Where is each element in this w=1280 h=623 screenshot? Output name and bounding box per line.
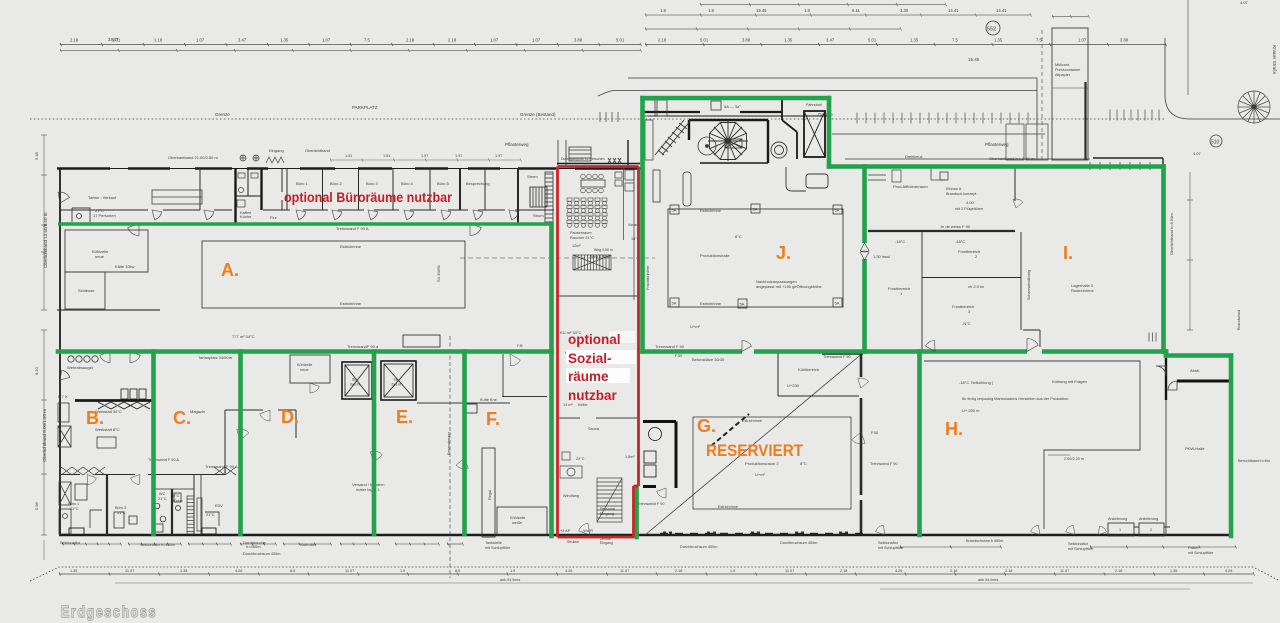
svg-text:Büro 1: Büro 1 [296,181,309,186]
svg-text:34.07: 34.07 [108,37,119,42]
svg-text:Weg 0,50 m: Weg 0,50 m [590,255,610,259]
svg-text:Besanderung: Besanderung [447,432,451,455]
svg-text:Kälte 10kw: Kälte 10kw [115,264,135,269]
svg-text:Fahrstuhl: Fahrstuhl [806,103,822,107]
svg-text:4.26: 4.26 [565,569,572,573]
svg-text:Oberkantband 21.00/0.50 m: Oberkantband 21.00/0.50 m [168,155,218,160]
svg-text:4.26: 4.26 [895,569,902,573]
svg-text:21°C: 21°C [206,513,215,517]
svg-text:Estrichrinne: Estrichrinne [700,208,722,213]
svg-text:Produktionsraum 2: Produktionsraum 2 [745,461,779,466]
svg-text:Prod.Affiniererraum: Prod.Affiniererraum [893,184,928,189]
svg-text:angepasst mit +150 geÖffnungsh: angepasst mit +150 geÖffnungshöhe [756,284,822,289]
svg-text:1.07: 1.07 [1078,38,1087,43]
svg-text:RESERVIERT: RESERVIERT [706,441,804,460]
svg-text:15.45: 15.45 [756,8,767,13]
svg-text:2.18: 2.18 [840,569,847,573]
svg-text:2.18: 2.18 [406,38,415,43]
svg-text:nutzbar: nutzbar [568,388,617,403]
svg-text:Anlieferung: Anlieferung [1139,517,1158,521]
svg-text:Kühlzelle: Kühlzelle [297,363,312,367]
svg-text:2.18: 2.18 [658,38,667,43]
svg-text:Eingang: Eingang [269,148,284,153]
svg-text:U+m²: U+m² [690,324,701,329]
svg-text:Windfang: Windfang [563,494,579,498]
svg-text:1.35: 1.35 [994,38,1003,43]
svg-text:mit Schlupftüre: mit Schlupftüre [485,546,510,550]
svg-text:Trennwand F 90: Trennwand F 90 [823,355,851,359]
svg-text:5.11: 5.11 [852,8,861,13]
svg-text:U+ 250 m: U+ 250 m [962,408,980,413]
svg-text:Pausenraum: Pausenraum [570,231,592,235]
svg-text:Brandwand: Brandwand [1236,310,1241,330]
svg-text:Magazin: Magazin [190,409,205,414]
svg-text:Büro 4: Büro 4 [401,181,414,186]
svg-text:5A — 3a°: 5A — 3a° [724,104,741,109]
svg-text:3.47: 3.47 [826,38,835,43]
svg-text:2.18: 2.18 [448,38,457,43]
svg-text:Durchbruchsum 450m: Durchbruchsum 450m [243,552,280,556]
svg-text:Strom: Strom [533,213,544,218]
svg-text:optional: optional [568,332,621,347]
svg-text:1.07: 1.07 [322,38,331,43]
svg-text:Tankstelle: Tankstelle [485,541,502,545]
svg-text:Pflasterweg: Pflasterweg [505,142,529,147]
svg-text:Frachtkühlere: Frachtkühlere [645,265,650,290]
svg-text:5.98: 5.98 [34,501,39,510]
svg-text:Büro 3: Büro 3 [115,506,126,510]
svg-text:TrennwandF 90 a: TrennwandF 90 a [347,344,379,349]
svg-text:5A: 5A [835,208,840,213]
svg-text:1.35: 1.35 [910,38,919,43]
svg-text:Durchbruchsum 450m: Durchbruchsum 450m [780,541,817,545]
svg-text:5A: 5A [672,208,677,213]
svg-text:-18°C: -18°C [895,239,905,244]
svg-text:-18°C Tiefkühlung ): -18°C Tiefkühlung ) [959,380,994,385]
svg-text:1.9: 1.9 [708,8,714,13]
svg-text:Müllcont.: Müllcont. [1055,63,1070,67]
svg-text:J.: J. [776,243,791,263]
svg-text:21°C: 21°C [158,497,167,501]
svg-text:5A: 5A [740,302,745,307]
svg-text:1.51: 1.51 [345,154,352,158]
svg-text:Oberlichtband h=6.50m: Oberlichtband h=6.50m [1169,213,1174,255]
svg-text:3.30: 3.30 [900,8,909,13]
svg-text:7.5: 7.5 [364,38,370,43]
svg-text:15.45: 15.45 [968,57,980,62]
svg-text:Küche: Küche [172,499,183,503]
svg-text:2: 2 [975,254,978,259]
svg-text:Büro 3: Büro 3 [366,181,379,186]
svg-text:4.07: 4.07 [1240,0,1249,5]
svg-text:1.07: 1.07 [196,38,205,43]
svg-text:5.01: 5.01 [616,38,625,43]
svg-text:Grenze (Bestand): Grenze (Bestand) [520,112,556,117]
svg-text:Trennwand F 90: Trennwand F 90 [655,344,685,349]
svg-text:1: 1 [1119,528,1121,532]
svg-text:1: 1 [900,291,903,296]
svg-text:WC: WC [159,492,166,496]
svg-text:2.18: 2.18 [675,569,682,573]
svg-text:8°C: 8°C [800,461,807,466]
svg-text:777 m² 34°C: 777 m² 34°C [232,334,255,339]
svg-text:17 Personen: 17 Personen [93,213,116,218]
svg-text:1.35: 1.35 [784,38,793,43]
svg-text:Kühlzelle: Kühlzelle [510,516,525,520]
svg-text:mit Schlupftüre: mit Schlupftüre [878,546,903,550]
svg-text:ch 2.9 kn: ch 2.9 kn [968,284,984,289]
svg-text:552: 552 [987,27,996,33]
svg-text:Schamwandkonig: Schamwandkonig [1027,270,1031,300]
svg-text:Durchbruchsum 450m: Durchbruchsum 450m [680,545,717,549]
svg-text:5.01: 5.01 [868,38,877,43]
svg-text:mater lager 1: mater lager 1 [356,487,380,492]
svg-text:Besprechung: Besprechung [466,181,490,186]
svg-text:Keller: Keller [578,403,588,407]
svg-text:Strom: Strom [527,174,538,179]
svg-text:5A: 5A [672,301,677,306]
svg-text:7.5: 7.5 [952,38,958,43]
svg-text:F.: F. [486,409,500,429]
svg-text:Presscontainer: Presscontainer [1055,68,1081,72]
svg-text:1.30 lnsul: 1.30 lnsul [873,254,890,259]
svg-text:Sektionaltor: Sektionaltor [1068,542,1089,546]
svg-text:1.97: 1.97 [455,154,462,158]
svg-text:22°C: 22°C [576,457,585,461]
svg-text:EDV: EDV [215,504,223,508]
svg-text:Wehrabsauger: Wehrabsauger [67,365,94,370]
svg-text:Brandschutzw.h 450m: Brandschutzw.h 450m [966,539,1003,543]
svg-text:1.35: 1.35 [180,569,187,573]
svg-text:Trennwand F 90: Trennwand F 90 [870,462,898,466]
svg-text:mit Schlupftüre: mit Schlupftüre [1188,551,1213,555]
svg-text:1.51: 1.51 [383,154,390,158]
svg-text:8.5: 8.5 [455,569,460,573]
svg-text:3.47: 3.47 [238,38,247,43]
svg-text:Eingang: Eingang [600,541,613,545]
svg-text:PKW-Halle: PKW-Halle [1185,446,1205,451]
svg-text:14 m²: 14 m² [563,403,573,407]
svg-text:mit 2 Flügeltüren: mit 2 Flügeltüren [955,207,983,211]
svg-text:mit Schlupftüre: mit Schlupftüre [1068,547,1093,551]
svg-text:Betonstütze 30/30: Betonstütze 30/30 [692,357,725,362]
svg-text:11.07: 11.07 [125,569,134,573]
svg-text:Frostbereich: Frostbereich [952,304,974,309]
svg-text:-N°C: -N°C [962,321,971,326]
svg-text:Oberlichtband: Oberlichtband [305,148,330,153]
svg-text:2.18: 2.18 [70,38,79,43]
svg-text:PARKPLATZ: PARKPLATZ [352,105,378,110]
svg-text:4.26: 4.26 [235,569,242,573]
svg-text:1.18: 1.18 [154,38,163,43]
svg-text:Anlieferung: Anlieferung [1108,517,1127,521]
svg-text:Tartan - Verkauf: Tartan - Verkauf [88,195,117,200]
svg-text:Estrichrinne: Estrichrinne [718,505,738,509]
svg-text:h=450m: h=450m [246,544,261,549]
svg-text:Küche: Küche [240,214,252,219]
svg-text:Estrichrinne: Estrichrinne [340,244,362,249]
svg-text:3.88: 3.88 [1120,38,1129,43]
svg-text:1.97: 1.97 [421,154,428,158]
svg-text:E.: E. [396,407,413,427]
svg-text:Pflasterweg: Pflasterweg [985,142,1009,147]
svg-text:1.9: 1.9 [730,569,735,573]
svg-text:F.50: F.50 [871,431,878,435]
svg-text:2.18: 2.18 [950,569,957,573]
svg-text:neue: neue [300,368,308,372]
svg-text:Trennwand F 90: Trennwand F 90 [637,502,665,506]
svg-text:Büro 5: Büro 5 [437,181,450,186]
svg-text:14.41: 14.41 [996,8,1007,13]
svg-text:Altpapier: Altpapier [1055,73,1071,77]
svg-text:5A: 5A [753,207,758,212]
svg-text:4.07: 4.07 [1193,151,1202,156]
svg-text:Erdgeschoss: Erdgeschoss [61,604,157,621]
svg-text:5.01: 5.01 [700,38,709,43]
svg-text:F.B: F.B [517,344,523,348]
svg-text:Grenze: Grenze [215,112,230,117]
svg-text:Estrichrinne: Estrichrinne [700,301,722,306]
svg-text:Jn de weiss F 90: Jn de weiss F 90 [940,224,971,229]
svg-text:1.07: 1.07 [490,38,499,43]
svg-text:Schleuse: Schleuse [78,288,95,293]
svg-text:Rostreinhme: Rostreinhme [1071,288,1094,293]
svg-text:optional Büroräume nutzbar: optional Büroräume nutzbar [284,190,453,205]
svg-text:2.18: 2.18 [1115,569,1122,573]
svg-text:2°C: 2°C [173,494,180,498]
svg-text:21°C: 21°C [117,511,126,515]
svg-text:6x6 m: 6x6 m [392,383,402,387]
svg-text:ank 94 lines: ank 94 lines [978,578,998,582]
svg-text:H.: H. [945,419,963,439]
svg-text:Sauna: Sauna [588,427,600,431]
svg-text:8.10: 8.10 [34,366,39,375]
svg-text:21°C: 21°C [70,507,79,511]
svg-text:-Wd,Fl: -Wd,Fl [582,529,593,533]
svg-text:3: 3 [968,309,971,314]
svg-text:11.07: 11.07 [345,569,354,573]
svg-text:Raucher 21°C: Raucher 21°C [570,236,594,240]
svg-text:Flur: Flur [270,215,278,220]
svg-text:Brandsch.konzept: Brandsch.konzept [946,192,977,196]
svg-text:Sozial-: Sozial- [568,351,612,366]
svg-text:U+m²: U+m² [755,472,766,477]
svg-text:Personal: Personal [600,507,615,511]
svg-text:3.88: 3.88 [574,38,583,43]
svg-text:G.: G. [697,416,716,436]
svg-text:Sektionaltor h=450m: Sektionaltor h=450m [140,543,175,547]
svg-text:8°C: 8°C [735,234,742,239]
svg-text:neue: neue [95,254,105,259]
svg-text:Struktur: Struktur [567,540,580,544]
svg-text:1.07: 1.07 [532,38,541,43]
svg-text:Oberlichtband 13.50/0.50 m: Oberlichtband 13.50/0.50 m [43,212,48,268]
svg-text:1.9: 1.9 [660,8,666,13]
svg-text:-18°C: -18°C [955,239,965,244]
svg-text:4.26: 4.26 [1225,569,1232,573]
svg-text:S4 JW/St: S4 JW/St [436,264,441,282]
svg-text:Berschtband h=6m: Berschtband h=6m [1238,459,1270,463]
svg-text:4.00: 4.00 [966,200,975,205]
svg-text:510: 510 [1211,140,1220,146]
svg-text:14.41: 14.41 [948,8,959,13]
svg-text:1.9: 1.9 [510,569,515,573]
svg-text:für fertig verpackig Marmelade: für fertig verpackig Marmeladens Herstel… [962,397,1068,401]
svg-text:Einbau It.: Einbau It. [946,187,962,191]
svg-text:Büro 1: Büro 1 [68,502,79,506]
svg-text:Oberlichtband 8.00/1.50 m: Oberlichtband 8.00/1.50 m [42,409,47,462]
svg-text:Sektionaltor: Sektionaltor [878,541,899,545]
svg-text:+2 AP: +2 AP [560,529,571,533]
svg-text:1.35: 1.35 [1170,569,1177,573]
svg-text:F.50: F.50 [675,354,682,358]
svg-text:Estrichrinne: Estrichrinne [742,419,762,423]
svg-text:2.00/2.20 m: 2.00/2.20 m [1064,457,1084,461]
svg-text:F 7 X: F 7 X [58,394,68,399]
svg-text:6x6 m: 6x6 m [350,383,360,387]
svg-text:Tartanplatz 34/50m: Tartanplatz 34/50m [198,355,233,360]
svg-text:3.88: 3.88 [742,38,751,43]
svg-text:1.35: 1.35 [70,569,77,573]
svg-text:2: 2 [1150,528,1152,532]
svg-text:Durchgangstür 11 Personen: Durchgangstür 11 Personen [561,157,605,161]
svg-text:11.07: 11.07 [785,569,794,573]
svg-text:2.18: 2.18 [1005,569,1012,573]
svg-text:1.9: 1.9 [400,569,405,573]
svg-text:C.: C. [173,408,191,428]
svg-text:Sp: Sp [352,378,356,382]
svg-text:weiße: weiße [512,521,522,525]
svg-text:Trennwand F 90 A: Trennwand F 90 A [336,226,369,231]
svg-text:Kühlbereich: Kühlbereich [798,367,819,372]
svg-text:Büro 2: Büro 2 [330,181,343,186]
svg-text:Oberkantband h = 8.50 m: Oberkantband h = 8.50 m [989,156,1035,161]
svg-text:Produktionshalle: Produktionshalle [700,253,730,258]
svg-text:Pallter: Pallter [1188,546,1199,550]
svg-text:Trennwand F 90 A: Trennwand F 90 A [205,464,238,469]
svg-text:5.48: 5.48 [34,151,39,160]
svg-text:I.: I. [1063,243,1073,263]
svg-text:5A: 5A [835,301,840,306]
svg-text:ank 94 lines: ank 94 lines [500,578,520,582]
svg-text:Kufte Kne: Kufte Kne [480,398,497,402]
svg-text:1.35: 1.35 [280,38,289,43]
svg-text:B.: B. [86,408,104,428]
svg-text:1,5m²: 1,5m² [625,455,635,459]
svg-text:1.9: 1.9 [804,8,810,13]
svg-text:12m²: 12m² [572,244,581,248]
svg-text:11.07: 11.07 [1060,569,1069,573]
svg-text:Regal: Regal [488,490,492,500]
svg-text:Weg 0,50 m: Weg 0,50 m [594,248,613,252]
svg-text:1.97: 1.97 [495,154,502,158]
svg-text:A.: A. [221,260,239,280]
svg-text:11.07: 11.07 [620,569,629,573]
svg-text:7.5: 7.5 [1036,38,1042,43]
svg-text:U+230: U+230 [787,383,800,388]
svg-text:räume: räume [568,369,609,384]
svg-text:D.: D. [281,407,299,427]
svg-text:Abstr.: Abstr. [1190,368,1200,373]
svg-text:Knauer Straße: Knauer Straße [1272,45,1277,75]
svg-text:Kühlung mit Fragen: Kühlung mit Fragen [1052,379,1087,384]
svg-text:Estrichrinne: Estrichrinne [340,301,362,306]
svg-text:Drehkreuz: Drehkreuz [905,155,923,159]
svg-text:Sp: Sp [394,378,398,382]
svg-text:8.5: 8.5 [290,569,295,573]
